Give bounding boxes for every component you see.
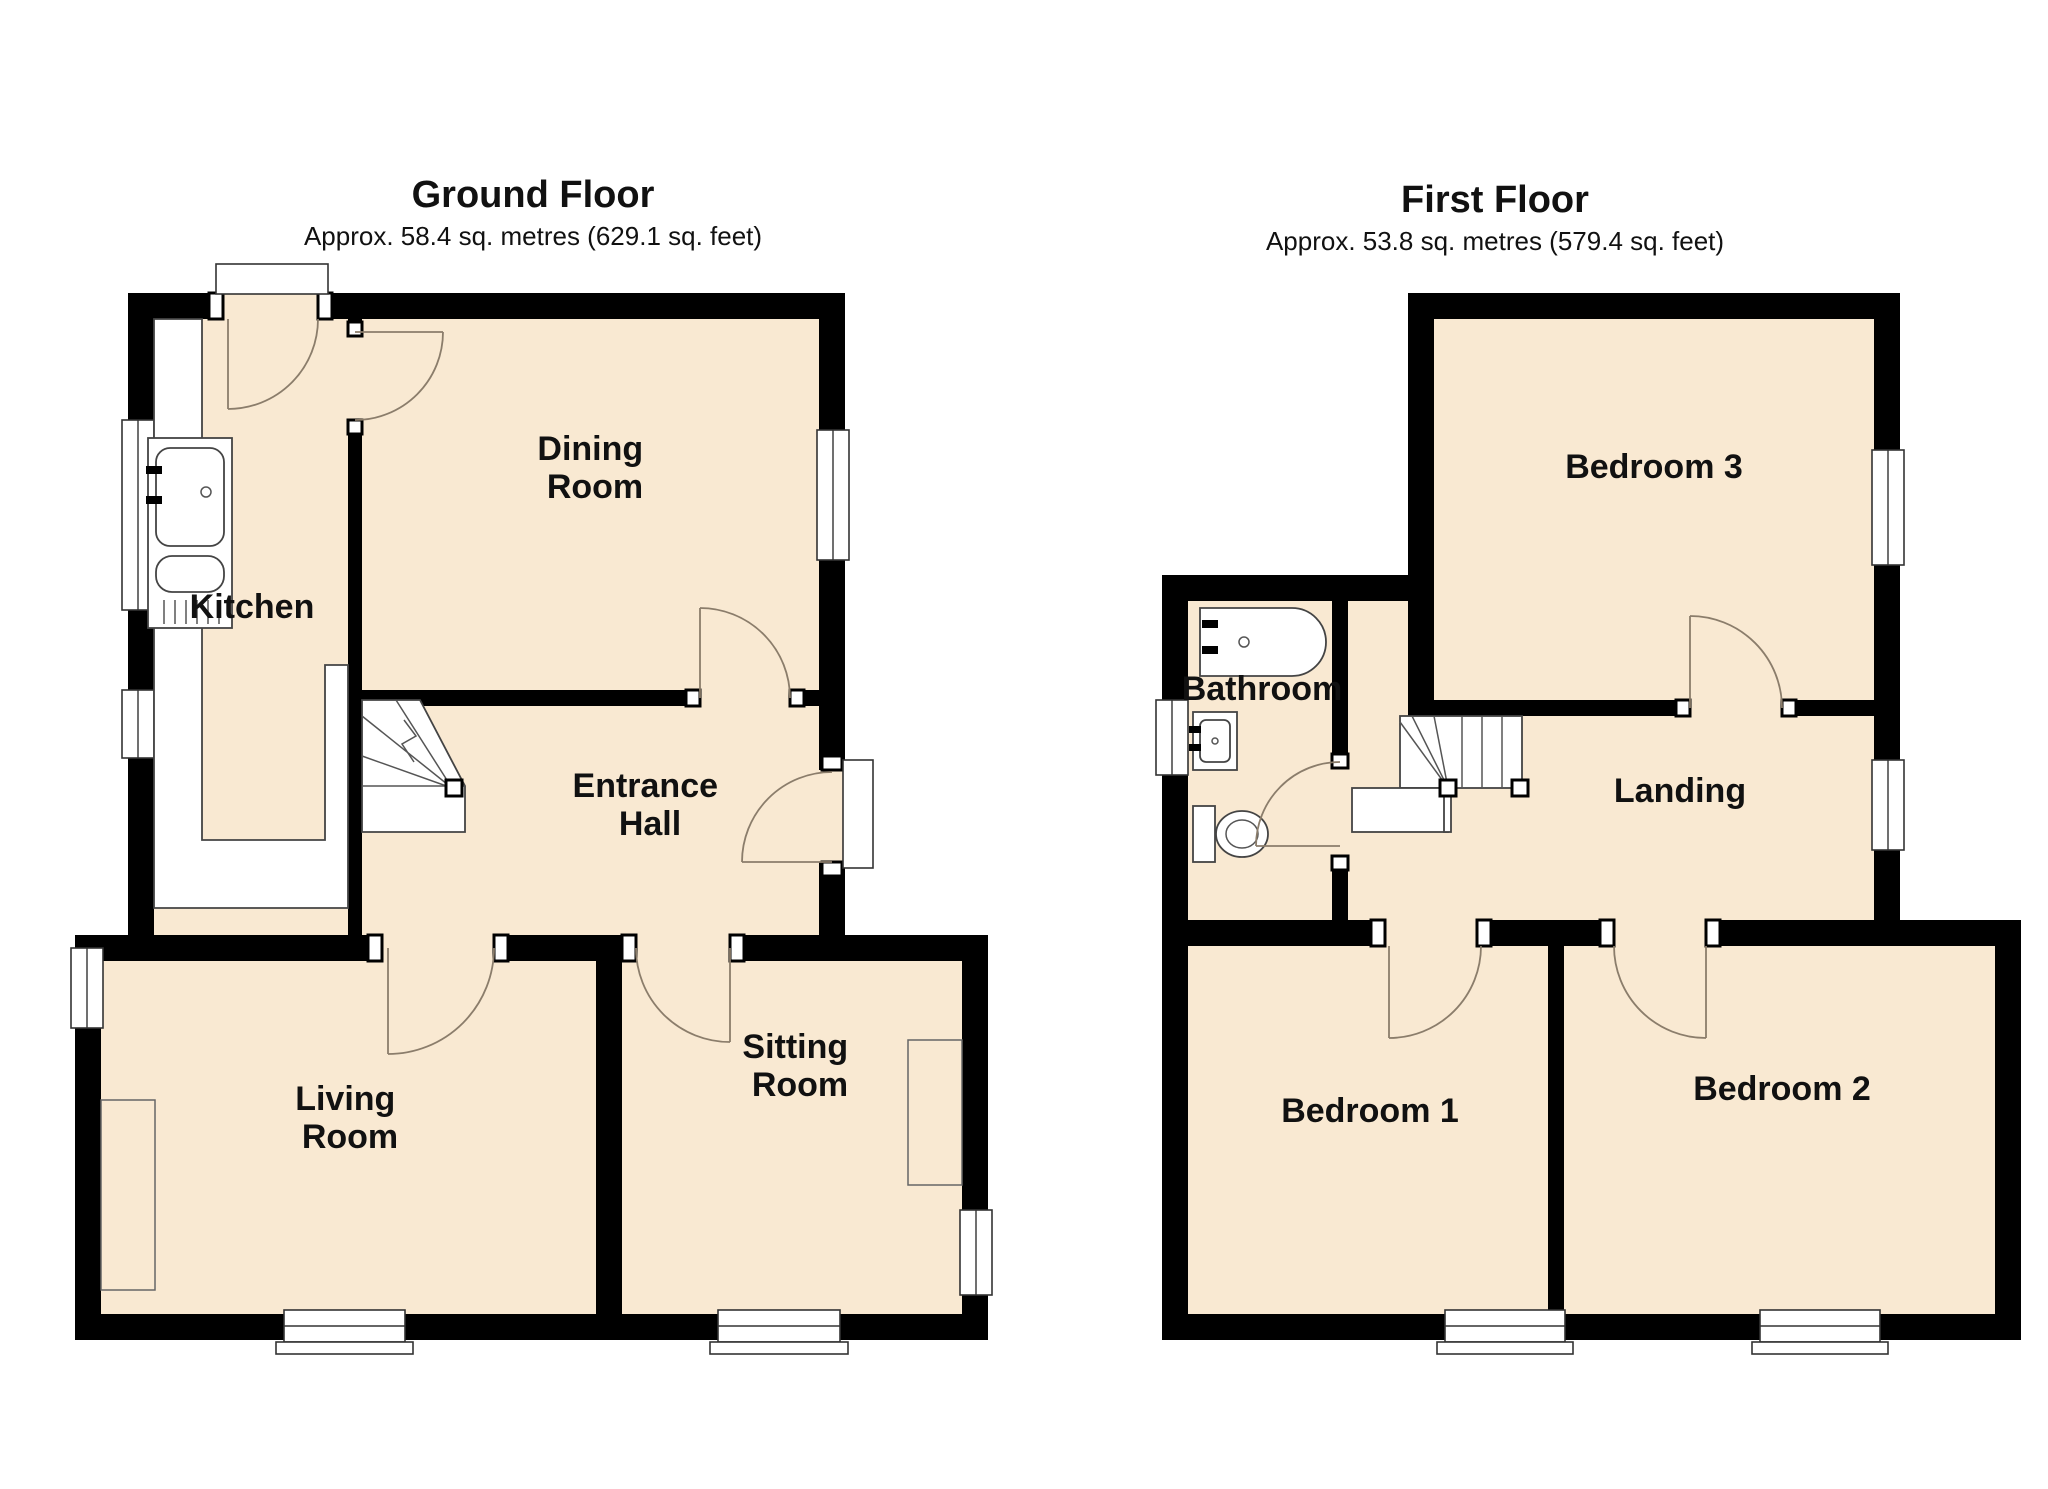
- kitchen-window-lower: [122, 690, 154, 758]
- sitting-room-side-window: [960, 1210, 992, 1295]
- room-label-bedroom2: Bedroom 2: [1693, 1070, 1871, 1108]
- floorplan-drawing: Ground Floor Approx. 58.4 sq. metres (62…: [0, 0, 2048, 1489]
- ground-floor-plan: Ground Floor Approx. 58.4 sq. metres (62…: [71, 174, 992, 1354]
- room-label-dining: Dining Room: [537, 430, 652, 506]
- room-label-sitting: Sitting Room: [742, 1028, 857, 1104]
- bedroom1-window: [1437, 1310, 1573, 1354]
- bathroom-window: [1156, 700, 1188, 775]
- landing-window: [1872, 760, 1904, 850]
- bedroom3-window: [1872, 450, 1904, 565]
- front-door-porch: [843, 760, 873, 868]
- room-label-landing: Landing: [1614, 772, 1746, 810]
- room-label-kitchen: Kitchen: [190, 588, 315, 626]
- floorplan-page: Ground Floor Approx. 58.4 sq. metres (62…: [0, 0, 2048, 1489]
- living-room-side-window: [71, 948, 103, 1028]
- first-floor-plan: First Floor Approx. 53.8 sq. metres (579…: [1156, 179, 2021, 1354]
- first-floor-title: First Floor: [1401, 179, 1589, 221]
- living-room-window: [276, 1310, 413, 1354]
- first-floor-subtitle: Approx. 53.8 sq. metres (579.4 sq. feet): [1266, 226, 1724, 256]
- bathtub: [1200, 608, 1326, 676]
- bedroom2-window: [1752, 1310, 1888, 1354]
- ground-floor-subtitle: Approx. 58.4 sq. metres (629.1 sq. feet): [304, 221, 762, 251]
- room-label-living: Living Room: [295, 1080, 405, 1156]
- room-label-bedroom1: Bedroom 1: [1281, 1092, 1459, 1130]
- ground-floor-title: Ground Floor: [412, 174, 655, 216]
- wash-basin: [1189, 712, 1237, 770]
- sitting-room-chimney-breast: [908, 1040, 962, 1185]
- room-label-bathroom: Bathroom: [1182, 670, 1343, 708]
- living-room-chimney-breast: [101, 1100, 155, 1290]
- dining-room-window: [817, 430, 849, 560]
- room-label-bedroom3: Bedroom 3: [1565, 448, 1743, 486]
- sitting-room-window: [710, 1310, 848, 1354]
- back-door-porch: [216, 264, 328, 294]
